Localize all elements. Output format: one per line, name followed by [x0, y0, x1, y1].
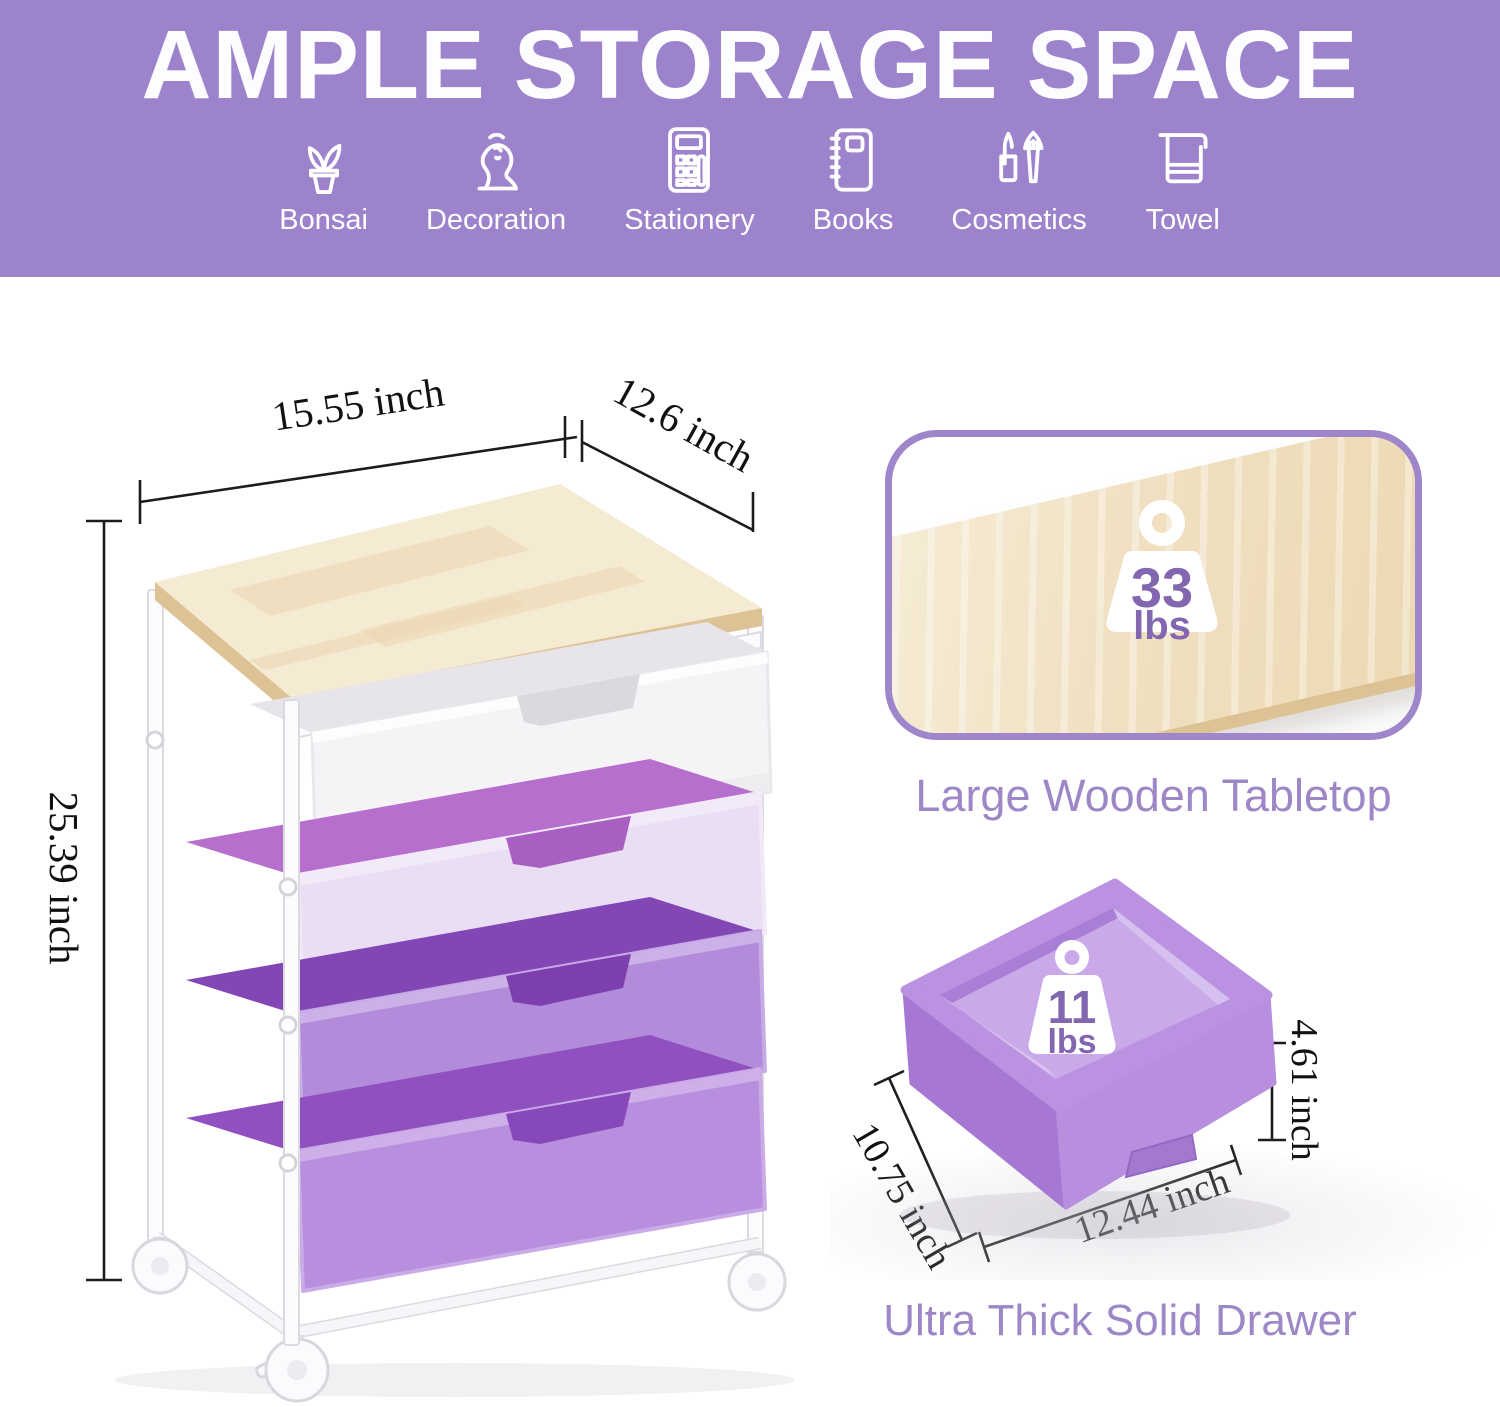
use-case-cosmetics: Cosmetics [951, 122, 1086, 235]
banner: AMPLE STORAGE SPACE Bonsai [0, 0, 1500, 277]
cart-height-dimension: 25.39 inch [40, 791, 88, 964]
cart-width-dimension: 15.55 inch [269, 367, 447, 440]
notebook-icon [815, 122, 891, 198]
icon-label: Cosmetics [951, 206, 1086, 235]
use-case-towel: Towel [1145, 122, 1221, 235]
icon-label: Stationery [624, 206, 755, 235]
use-case-bonsai: Bonsai [279, 122, 368, 235]
use-case-books: Books [813, 122, 894, 235]
frame-post-back-left [148, 590, 163, 1245]
bust-icon [458, 122, 534, 198]
page-title: AMPLE STORAGE SPACE [0, 14, 1500, 116]
use-case-decoration: Decoration [426, 122, 566, 235]
icon-label: Towel [1146, 206, 1220, 235]
tabletop-caption: Large Wooden Tabletop [885, 770, 1422, 822]
use-case-stationery: Stationery [624, 122, 755, 235]
storage-cart-illustration [60, 440, 840, 1405]
icon-label: Bonsai [279, 206, 368, 235]
tabletop-callout: 33 lbs [885, 430, 1422, 740]
svg-text:lbs: lbs [1047, 1023, 1096, 1061]
product-infographic: AMPLE STORAGE SPACE Bonsai [0, 0, 1500, 1407]
weight-33lbs-icon: 33 lbs [1082, 499, 1242, 649]
calculator-icon [651, 122, 727, 198]
lipstick-brush-icon [981, 122, 1057, 198]
bonsai-icon [286, 122, 362, 198]
icon-label: Books [813, 206, 894, 235]
use-case-icons-row: Bonsai Decoration [0, 122, 1500, 235]
drawer-photo: 11 lbs [860, 855, 1380, 1255]
drawer-caption: Ultra Thick Solid Drawer [860, 1296, 1380, 1346]
svg-text:lbs: lbs [1133, 604, 1191, 648]
towel-icon [1145, 122, 1221, 198]
icon-label: Decoration [426, 206, 566, 235]
